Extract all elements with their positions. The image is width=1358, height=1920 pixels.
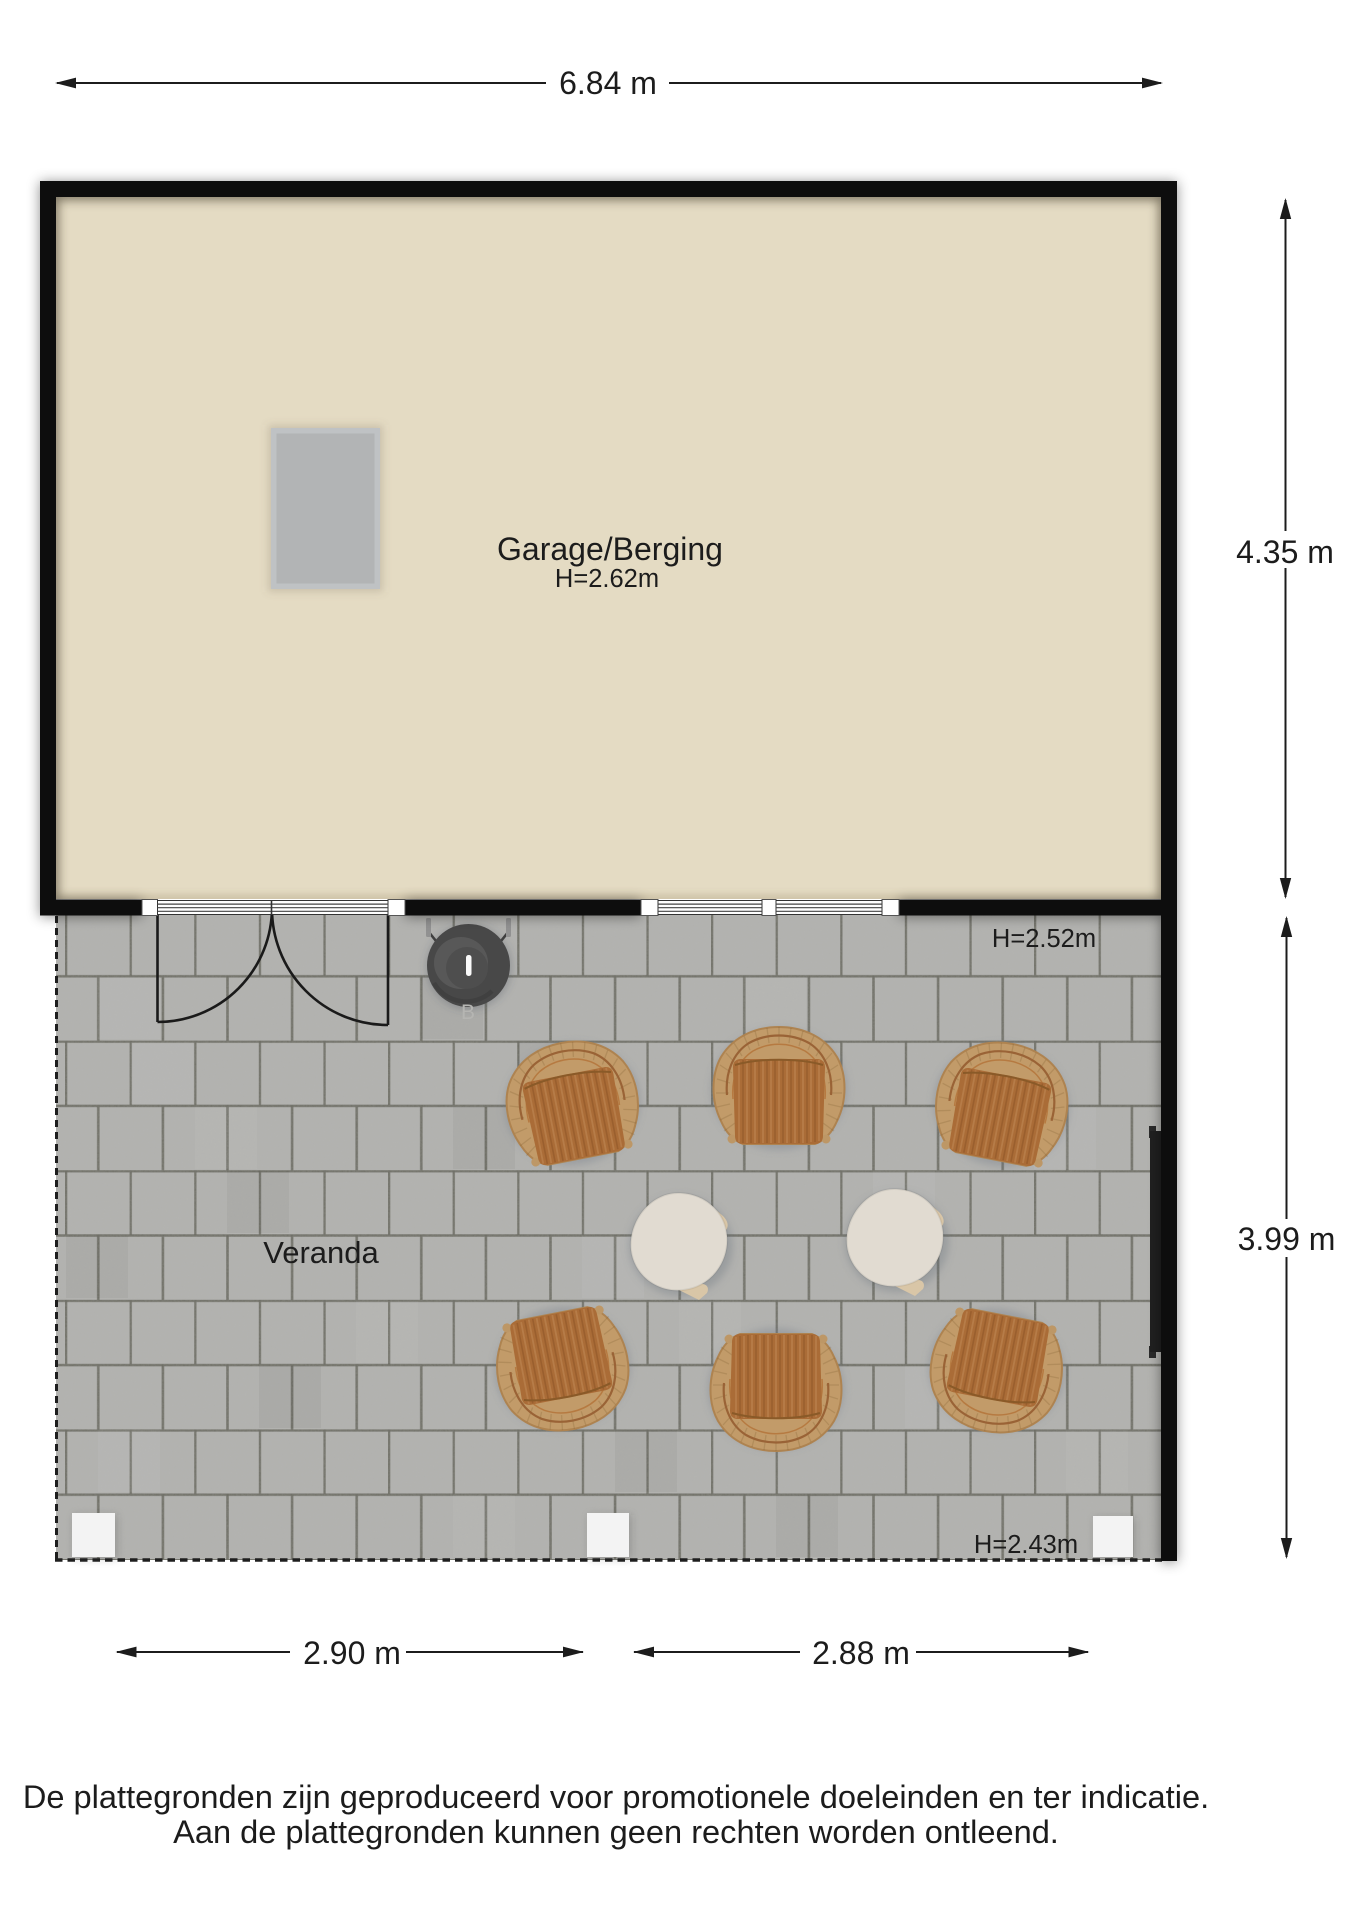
svg-text:6.84 m: 6.84 m: [559, 65, 657, 101]
svg-text:De plattegronden zijn geproduc: De plattegronden zijn geproduceerd voor …: [23, 1778, 1209, 1815]
svg-text:3.99 m: 3.99 m: [1238, 1221, 1336, 1257]
svg-text:H=2.43m: H=2.43m: [974, 1531, 1078, 1559]
svg-text:2.88 m: 2.88 m: [812, 1635, 910, 1671]
svg-text:H=2.52m: H=2.52m: [992, 925, 1096, 953]
svg-text:H=2.62m: H=2.62m: [555, 565, 659, 593]
svg-text:2.90 m: 2.90 m: [303, 1635, 401, 1671]
svg-text:Garage/Berging: Garage/Berging: [497, 531, 723, 567]
svg-text:B: B: [461, 1001, 475, 1024]
svg-text:Veranda: Veranda: [263, 1235, 379, 1270]
svg-text:Aan de plattegronden kunnen ge: Aan de plattegronden kunnen geen rechten…: [173, 1813, 1059, 1850]
svg-text:4.35 m: 4.35 m: [1236, 534, 1334, 570]
